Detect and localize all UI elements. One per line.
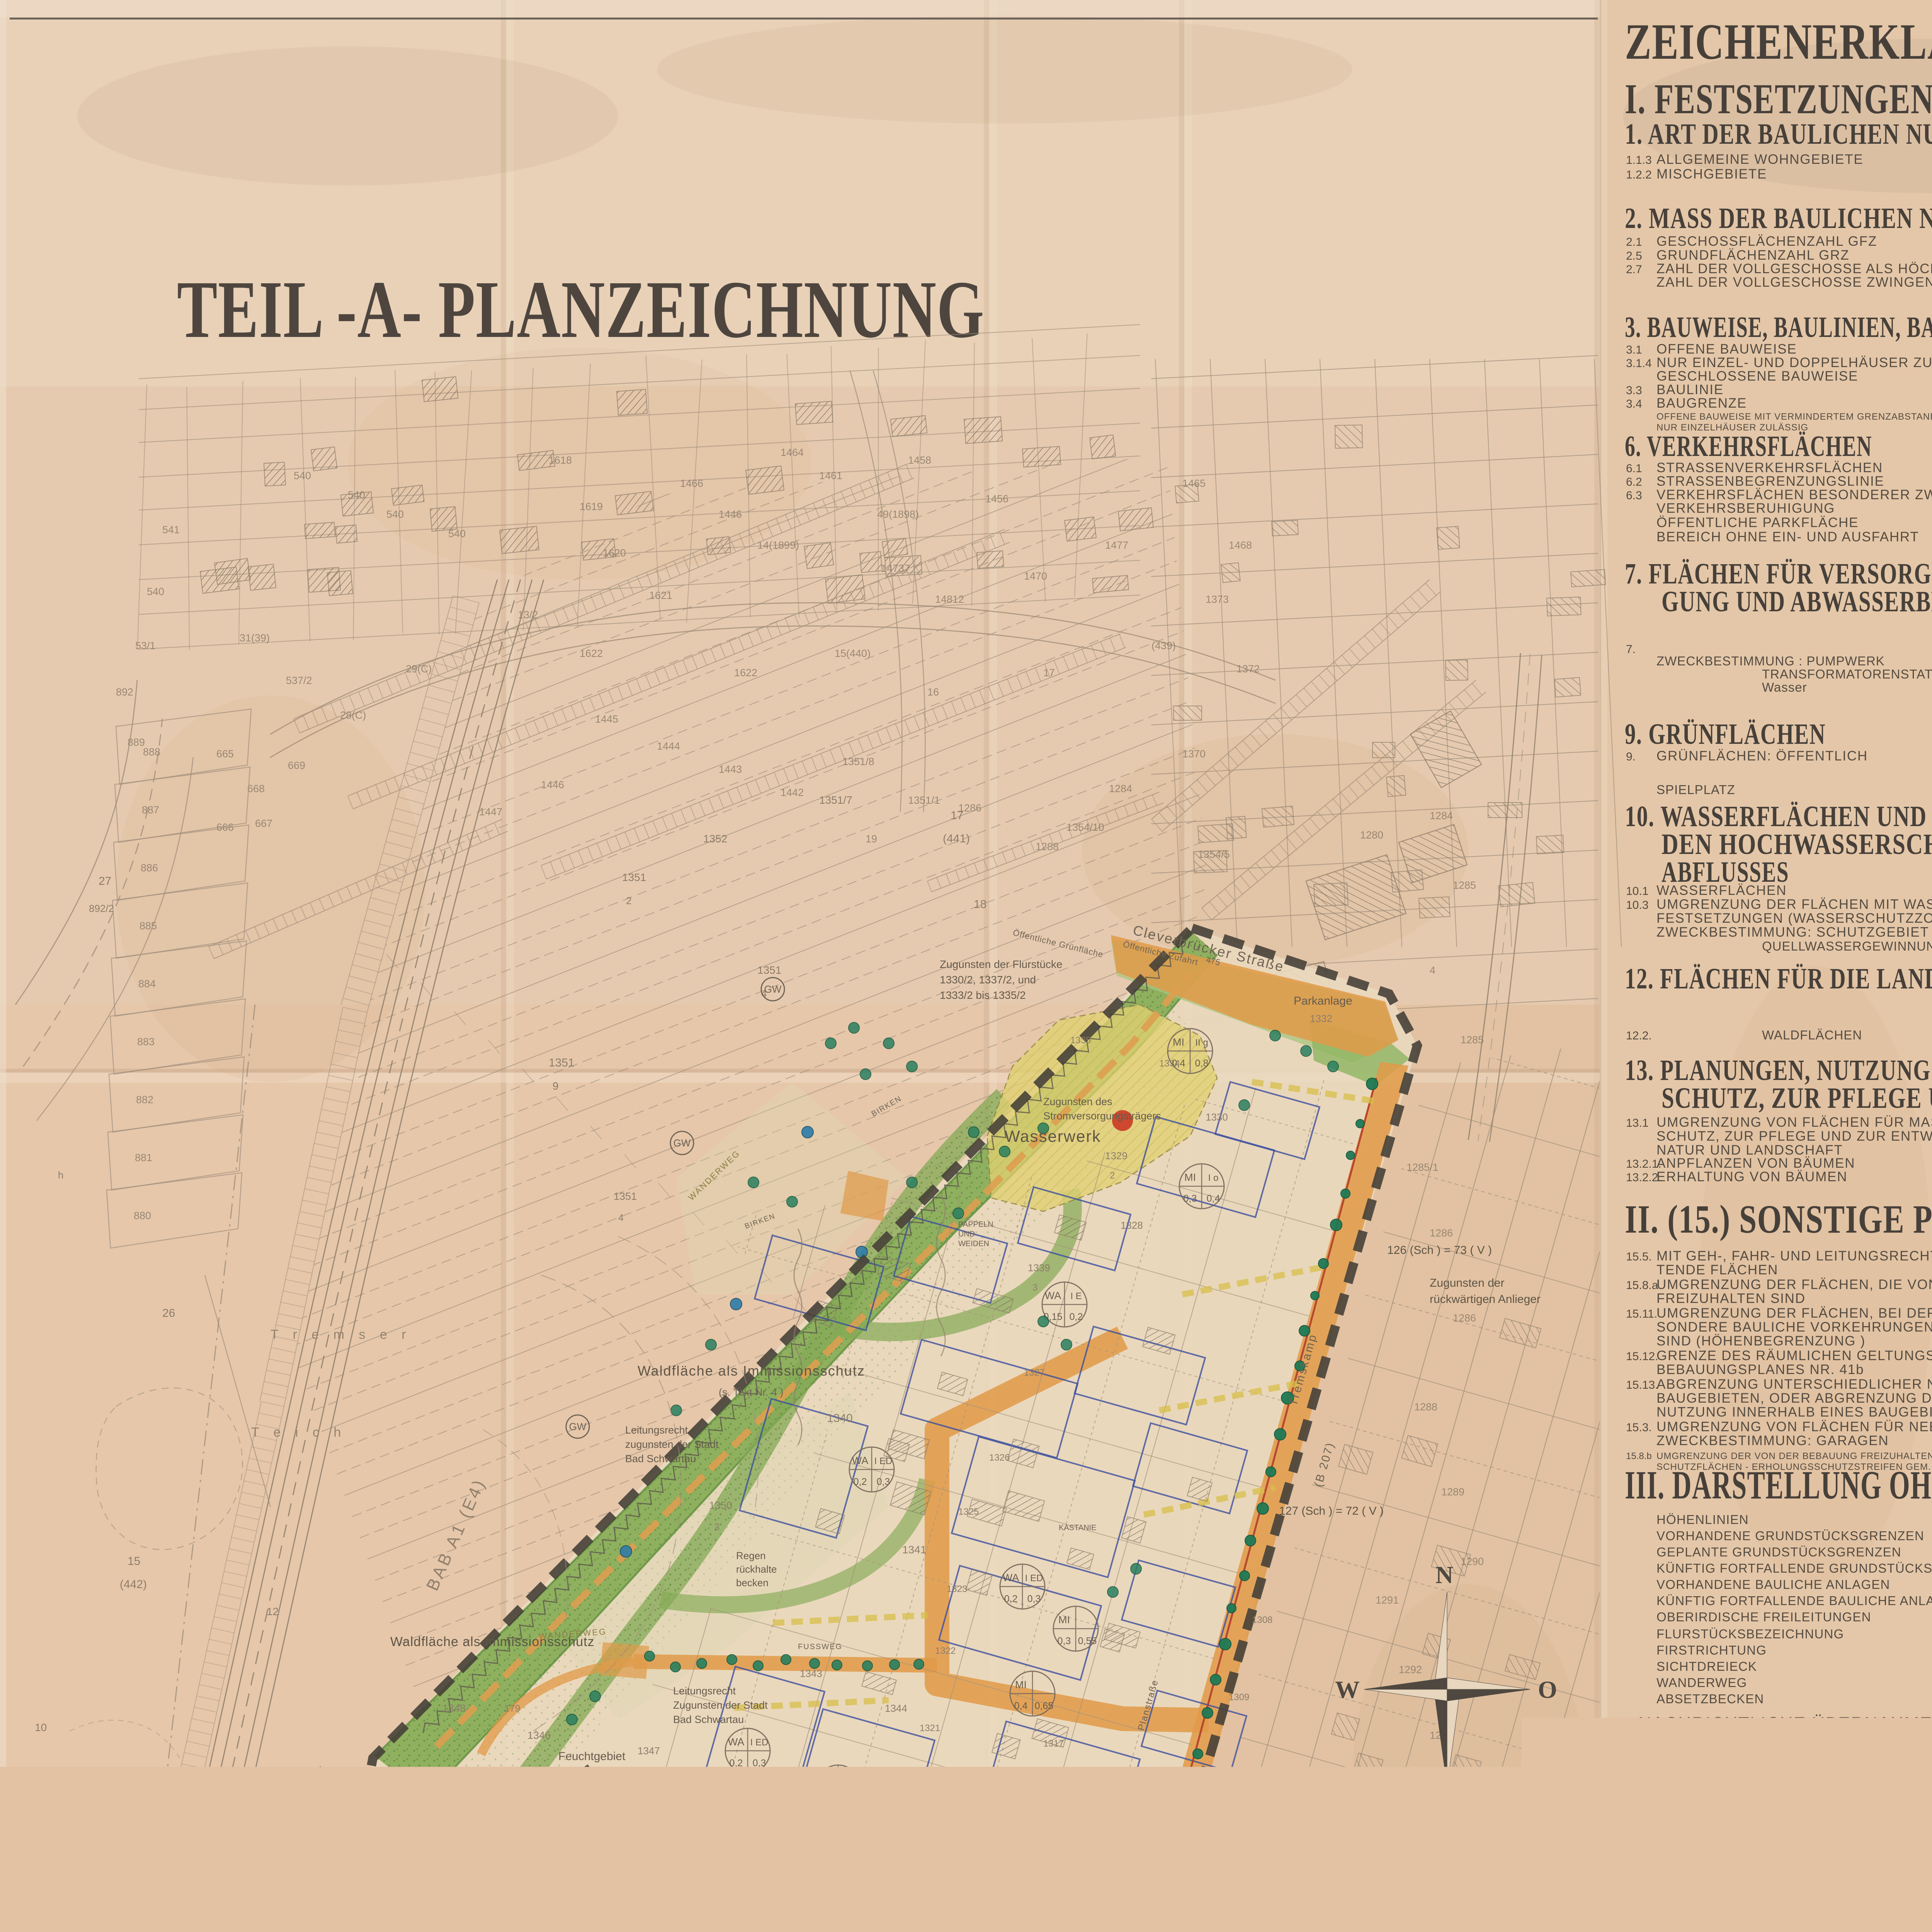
svg-text:Waldfläche als Immissionsschut: Waldfläche als Immissionsschutz — [638, 1363, 865, 1379]
svg-text:I. FESTSETZUNGEN: I. FESTSETZUNGEN — [1625, 75, 1932, 122]
svg-text:1.: 1. — [1638, 1814, 1648, 1827]
svg-text:SONDERE BAULICHE VORKEHRUNGE: SONDERE BAULICHE VORKEHRUNGEN ERFORDERLI… — [1656, 1320, 1932, 1335]
svg-text:1310: 1310 — [1206, 1769, 1226, 1780]
svg-text:T e i c h: T e i c h — [251, 1425, 346, 1440]
svg-text:UMGRENZUNG VON FLÄCHEN FÜR: UMGRENZUNG VON FLÄCHEN FÜR NEBENANLAGEN — [1656, 1419, 1932, 1434]
svg-text:(442): (442) — [120, 1578, 147, 1591]
svg-text:DER KLASSE 3 GEM. DIN 4109-SCH: DER KLASSE 3 GEM. DIN 4109-SCHALLSCHUTZ … — [1662, 1893, 1932, 1906]
svg-text:0,25: 0,25 — [686, 1875, 705, 1886]
svg-text:✳: ✳ — [1317, 1835, 1332, 1855]
svg-text:1465: 1465 — [1182, 478, 1206, 489]
svg-text:6. VERKEHRSFLÄCHEN: 6. VERKEHRSFLÄCHEN — [1625, 430, 1872, 463]
svg-text:1320: 1320 — [908, 1777, 929, 1787]
svg-text:1297: 1297 — [1376, 1903, 1399, 1915]
svg-text:ABSETZBECKEN: ABSETZBECKEN — [1656, 1692, 1764, 1706]
svg-text:SPIELPLATZ: SPIELPLATZ — [1656, 782, 1735, 797]
svg-text:29(C): 29(C) — [406, 663, 432, 675]
svg-text:881: 881 — [135, 1152, 152, 1163]
svg-text:Bad Schwartau: Bad Schwartau — [625, 1453, 696, 1464]
svg-text:1444: 1444 — [657, 740, 680, 752]
svg-text:1285: 1285 — [1453, 879, 1476, 891]
svg-text:OFFENE BAUWEISE MIT VERMIND: OFFENE BAUWEISE MIT VERMINDERTEM GRENZAB… — [1656, 412, 1932, 422]
svg-text:1619: 1619 — [580, 501, 603, 512]
svg-text:0,4: 0,4 — [1207, 1193, 1220, 1204]
svg-text:1468: 1468 — [1229, 539, 1252, 551]
svg-text:1309: 1309 — [838, 1866, 859, 1876]
svg-text:1466: 1466 — [680, 478, 703, 489]
svg-text:STRASSENBEGRENZUNGSLINIE: STRASSENBEGRENZUNGSLINIE — [1656, 474, 1884, 489]
svg-text:1352: 1352 — [703, 833, 727, 845]
svg-text:VORHANDENE BAULICHE ANLAGEN: VORHANDENE BAULICHE ANLAGEN — [1656, 1577, 1890, 1592]
svg-text:12: 12 — [267, 1605, 279, 1617]
svg-text:1289: 1289 — [1441, 1486, 1464, 1498]
svg-text:SIND (HÖHENBEGRENZUNG ): SIND (HÖHENBEGRENZUNG ) — [1656, 1333, 1866, 1349]
svg-text:S: S — [1435, 1795, 1450, 1822]
svg-text:1445: 1445 — [595, 713, 618, 725]
svg-text:zugunsten der Stadt: zugunsten der Stadt — [625, 1439, 719, 1450]
svg-text:NUTZUNG INNERHALB EINES BAU: NUTZUNG INNERHALB EINES BAUGEBIETS — [1656, 1405, 1932, 1420]
svg-text:53/1: 53/1 — [135, 640, 156, 651]
svg-text:UMGRENZUNG VON FLÄCHEN FÜR: UMGRENZUNG VON FLÄCHEN FÜR MASSNAHMEN ZU… — [1656, 1115, 1932, 1130]
svg-text:126 (Sch ) = 73 ( V ): 126 (Sch ) = 73 ( V ) — [1387, 1244, 1492, 1257]
svg-text:QUELLWASSERGEWINNUNG: QUELLWASSERGEWINNUNG — [1762, 939, 1932, 953]
svg-text:GW: GW — [764, 983, 782, 995]
svg-text:0,15: 0,15 — [663, 1875, 682, 1886]
svg-text:Regen: Regen — [270, 1818, 300, 1830]
svg-text:888: 888 — [143, 746, 160, 758]
svg-text:6.1: 6.1 — [1626, 462, 1642, 475]
svg-text:1321: 1321 — [920, 1723, 940, 1733]
svg-text:3.4: 3.4 — [1626, 398, 1642, 410]
svg-text:1354/5: 1354/5 — [1198, 849, 1230, 860]
svg-text:rückhalte: rückhalte — [736, 1563, 777, 1575]
svg-text:Leitungsrecht: Leitungsrecht — [673, 1685, 736, 1697]
svg-text:1288: 1288 — [1414, 1401, 1437, 1413]
svg-text:883: 883 — [137, 1036, 155, 1048]
svg-text:1373: 1373 — [1206, 594, 1229, 605]
svg-text:1309: 1309 — [1229, 1692, 1249, 1702]
svg-text:9 (232)( E ) - 87 ( L ): 9 (232)( E ) - 87 ( L ) — [708, 1910, 813, 1922]
svg-text:15.5.: 15.5. — [1626, 1250, 1652, 1263]
svg-text:13.2.2.: 13.2.2. — [1626, 1171, 1662, 1184]
svg-text:ZAHL DER VOLLGESCHOSSE ZWINGE: ZAHL DER VOLLGESCHOSSE ZWINGEND — [1656, 275, 1932, 290]
svg-text:2: 2 — [626, 895, 631, 906]
svg-text:0,4: 0,4 — [1014, 1701, 1028, 1711]
svg-text:VERKEHRSFLÄCHEN BESONDERER Z: VERKEHRSFLÄCHEN BESONDERER ZWECKBESTIMMU… — [1656, 487, 1932, 502]
svg-text:1308: 1308 — [1252, 1615, 1272, 1625]
svg-text:1477: 1477 — [1105, 539, 1128, 551]
svg-text:1329: 1329 — [1105, 1150, 1128, 1162]
svg-text:1286: 1286 — [1430, 1227, 1453, 1239]
svg-text:II g: II g — [1195, 1037, 1208, 1048]
svg-text:ZWECKBESTIMMUNG: SCHUTZGEBIET: ZWECKBESTIMMUNG: SCHUTZGEBIET FÜR GRUND-… — [1656, 925, 1932, 940]
svg-text:0,2: 0,2 — [854, 1476, 867, 1487]
svg-text:GRENZE DES RÄUMLICHEN GELTU: GRENZE DES RÄUMLICHEN GELTUNGSBEREICHS D… — [1656, 1348, 1932, 1363]
svg-text:GESCHLOSSENE BAUWEISE: GESCHLOSSENE BAUWEISE — [1656, 369, 1858, 384]
svg-text:2: 2 — [714, 1522, 719, 1532]
svg-text:880: 880 — [134, 1210, 151, 1221]
svg-text:I ED: I ED — [874, 1908, 893, 1918]
svg-text:8: 8 — [920, 1917, 926, 1929]
svg-text:3. BAUWEISE, BAULINIEN, BAUG: 3. BAUWEISE, BAULINIEN, BAUGRENZEN — [1625, 311, 1932, 344]
svg-text:O: O — [1538, 1676, 1558, 1703]
svg-text:UMGRENZUNG DER FLÄCHEN, DIE: UMGRENZUNG DER FLÄCHEN, DIE VON DER BEBA… — [1656, 1277, 1932, 1292]
svg-text:UMGRENZUNG DER VON DER BEB: UMGRENZUNG DER VON DER BEBAUUNG FREIZUHA… — [1656, 1451, 1932, 1461]
svg-text:WALDFLÄCHEN: WALDFLÄCHEN — [1762, 1028, 1862, 1042]
svg-text:1351: 1351 — [614, 1190, 637, 1202]
svg-text:I E: I E — [1070, 1291, 1082, 1301]
svg-text:882: 882 — [136, 1094, 153, 1105]
svg-text:KÜNFTIG FORTFALLENDE GRUNDST: KÜNFTIG FORTFALLENDE GRUNDSTÜCKSGRENZEN — [1656, 1561, 1932, 1575]
svg-text:MIT GEH-, FAHR- UND LEITUNG: MIT GEH-, FAHR- UND LEITUNGSRECHTEN ZU B… — [1656, 1248, 1932, 1264]
svg-text:NACH §4 DER LANDESVERORDNUNG Z: NACH §4 DER LANDESVERORDNUNG ZUM SCHUTZE… — [1662, 1920, 1932, 1932]
svg-text:Zugunsten der Flurstücke: Zugunsten der Flurstücke — [940, 958, 1063, 970]
svg-text:FESTSETZUNGEN (WASSERSCHUTZZO: FESTSETZUNGEN (WASSERSCHUTZZONE II) — [1656, 911, 1932, 926]
svg-text:ETWA 2,7HA ZWISCHEN AUTOBAHN A: ETWA 2,7HA ZWISCHEN AUTOBAHN A1 UND DER … — [1662, 1906, 1932, 1920]
svg-text:3.: 3. — [1638, 1879, 1648, 1893]
svg-text:GARAGEN UND STELLPLÄTZE MÜSSEN: GARAGEN UND STELLPLÄTZE MÜSSEN IM ALLGEM… — [1662, 1814, 1932, 1827]
svg-text:WA: WA — [852, 1907, 869, 1918]
svg-text:10: 10 — [35, 1721, 47, 1733]
svg-text:SCHUTZ, ZUR PFLEGE UND ZUR: SCHUTZ, ZUR PFLEGE UND ZUR ENTWICKLUNG V… — [1662, 1082, 1932, 1114]
svg-text:1372: 1372 — [1236, 663, 1260, 675]
svg-text:1316: 1316 — [997, 1924, 1017, 1932]
svg-text:1348: 1348 — [442, 1702, 466, 1714]
svg-text:0,3: 0,3 — [877, 1476, 890, 1487]
svg-text:17: 17 — [951, 809, 963, 822]
svg-text:18: 18 — [974, 898, 986, 911]
svg-text:UMGRENZUNG DER FLÄCHEN, BEI: UMGRENZUNG DER FLÄCHEN, BEI DEREN BEBAUU… — [1656, 1306, 1932, 1321]
svg-text:1447: 1447 — [479, 806, 502, 818]
svg-text:3: 3 — [1032, 1282, 1037, 1293]
svg-text:MI: MI — [1015, 1679, 1027, 1690]
svg-text:1.2.2: 1.2.2 — [1626, 168, 1652, 181]
svg-text:1618: 1618 — [549, 454, 572, 466]
svg-text:7.: 7. — [1626, 643, 1636, 656]
svg-text:rückhalte: rückhalte — [270, 1832, 311, 1844]
svg-text:OBERIRDISCHE FREILEITUNGEN: OBERIRDISCHE FREILEITUNGEN — [1656, 1610, 1871, 1624]
svg-text:Geändert gemäß Verfügung des: Geändert gemäß Verfügung des — [1383, 1821, 1575, 1835]
svg-text:1370: 1370 — [1182, 748, 1206, 760]
svg-text:16: 16 — [927, 686, 939, 698]
svg-text:1295: 1295 — [1414, 1923, 1437, 1932]
svg-text:1310: 1310 — [769, 1835, 789, 1845]
svg-text:KÜNFTIG FORTFALLENDE BAULICH: KÜNFTIG FORTFALLENDE BAULICHE ANLAGEN — [1656, 1594, 1932, 1608]
svg-text:1326: 1326 — [989, 1452, 1010, 1463]
svg-text:VORHANDENE GRUNDSTÜCKSGRENZEN: VORHANDENE GRUNDSTÜCKSGRENZEN — [1656, 1529, 1924, 1543]
svg-text:27: 27 — [99, 875, 111, 888]
svg-text:1620: 1620 — [603, 547, 626, 559]
svg-text:0,2: 0,2 — [1004, 1594, 1018, 1604]
svg-text:BAUGEBIETEN, ODER ABGRENZUNG: BAUGEBIETEN, ODER ABGRENZUNG DES MASSES … — [1656, 1391, 1932, 1406]
svg-text:W: W — [1335, 1676, 1361, 1703]
svg-text:0,65: 0,65 — [1035, 1701, 1054, 1711]
svg-text:Wasser: Wasser — [1762, 680, 1807, 694]
svg-text:Landrates des Kreises OH vom: Landrates des Kreises OH vom — [1383, 1839, 1571, 1854]
svg-text:Wasserwerk: Wasserwerk — [1005, 1127, 1101, 1145]
svg-text:FLURSTÜCKSBEZEICHNUNG: FLURSTÜCKSBEZEICHNUNG — [1656, 1627, 1844, 1641]
svg-text:2: 2 — [1110, 1170, 1115, 1181]
svg-text:1622: 1622 — [734, 667, 757, 679]
svg-text:NUR EINZEL- UND DOPPELHÄUSER Z: NUR EINZEL- UND DOPPELHÄUSER ZULÄSSIG — [1656, 355, 1932, 370]
svg-text:Stromversorgungsträgers: Stromversorgungsträgers — [1043, 1110, 1161, 1122]
svg-text:VERKEHRSBERUHIGUNG: VERKEHRSBERUHIGUNG — [1656, 501, 1835, 516]
svg-text:1343: 1343 — [800, 1668, 822, 1679]
svg-text:887: 887 — [142, 804, 159, 816]
svg-text:N: N — [1435, 1561, 1454, 1588]
svg-text:15.8.a: 15.8.a — [1626, 1279, 1658, 1292]
svg-text:0,3: 0,3 — [1058, 1636, 1071, 1646]
svg-text:1351/1: 1351/1 — [908, 794, 940, 806]
svg-text:1292: 1292 — [1399, 1664, 1422, 1675]
svg-text:SICHTDREIECK: SICHTDREIECK — [1656, 1659, 1757, 1673]
svg-text:1285/1: 1285/1 — [1406, 1162, 1439, 1173]
svg-text:13.2.1.: 13.2.1. — [1626, 1158, 1662, 1170]
svg-text:GRÜNFLÄCHEN: ÖFFENTLICH: GRÜNFLÄCHEN: ÖFFENTLICH — [1656, 748, 1868, 764]
svg-text:1446: 1446 — [541, 779, 564, 791]
svg-text:4.: 4. — [1638, 1906, 1648, 1920]
svg-text:1351: 1351 — [549, 1056, 575, 1069]
svg-text:GRUNDFLÄCHENZAHL GRZ: GRUNDFLÄCHENZAHL GRZ — [1656, 248, 1849, 263]
svg-text:1322: 1322 — [935, 1646, 956, 1656]
svg-text:becken: becken — [270, 1846, 303, 1858]
svg-text:MISCHGEBIETE: MISCHGEBIETE — [1656, 167, 1767, 182]
svg-text:NACHRICHTLICHE ÜBERNAHMEN: NACHRICHTLICHE ÜBERNAHMEN — [1638, 1713, 1932, 1733]
svg-text:15.13.: 15.13. — [1626, 1379, 1658, 1391]
svg-text:0,3: 0,3 — [753, 1758, 766, 1769]
svg-text:1344: 1344 — [885, 1702, 907, 1714]
svg-text:49(1898): 49(1898) — [877, 509, 919, 520]
svg-text:1330/2, 1337/2, und: 1330/2, 1337/2, und — [940, 974, 1036, 986]
svg-text:ZEICHENERKLÄRUNG: ZEICHENERKLÄRUNG — [1625, 13, 1932, 70]
svg-text:T r e m s e r: T r e m s e r — [270, 1327, 412, 1342]
svg-text:12.2.: 12.2. — [1626, 1029, 1652, 1042]
svg-text:ZWECKBESTIMMUNG: GARAGEN: ZWECKBESTIMMUNG: GARAGEN — [1656, 1433, 1889, 1448]
svg-text:Regen: Regen — [736, 1550, 766, 1561]
svg-text:127 (Sch ) = 72 ( V ): 127 (Sch ) = 72 ( V ) — [1279, 1505, 1384, 1517]
svg-text:WA: WA — [852, 1455, 869, 1466]
svg-text:14812: 14812 — [935, 594, 964, 605]
svg-text:WASSERFLÄCHEN: WASSERFLÄCHEN — [1656, 883, 1787, 898]
svg-text:OFFENE BAUWEISE: OFFENE BAUWEISE — [1656, 342, 1797, 357]
svg-text:WA: WA — [818, 1773, 835, 1784]
svg-text:0,2: 0,2 — [820, 1794, 833, 1805]
svg-text:1351: 1351 — [622, 871, 646, 883]
svg-text:WA: WA — [1045, 1290, 1061, 1301]
svg-text:1318: 1318 — [1005, 1823, 1025, 1834]
svg-text:0,2: 0,2 — [854, 1929, 867, 1932]
svg-text:6.2: 6.2 — [1626, 476, 1642, 488]
svg-text:GUNG UND ABWASSERBESEITIGUNG: GUNG UND ABWASSERBESEITIGUNG SOWIE FÜR A… — [1662, 585, 1932, 618]
svg-text:1323: 1323 — [947, 1584, 967, 1594]
svg-text:✳: ✳ — [314, 1764, 327, 1781]
svg-text:1280: 1280 — [1360, 829, 1383, 841]
svg-text:I o: I o — [1208, 1173, 1219, 1183]
svg-text:884: 884 — [138, 978, 156, 990]
svg-text:1458: 1458 — [908, 454, 931, 466]
svg-text:Parkanlage: Parkanlage — [1294, 995, 1352, 1007]
svg-text:892/2: 892/2 — [89, 903, 114, 914]
svg-text:STRASSENVERKEHRSFLÄCHEN: STRASSENVERKEHRSFLÄCHEN — [1656, 460, 1883, 475]
svg-text:ALLGEMEINE WOHNGEBIETE: ALLGEMEINE WOHNGEBIETE — [1656, 152, 1864, 167]
svg-text:1.1.3: 1.1.3 — [1626, 154, 1652, 167]
svg-text:(441): (441) — [943, 832, 970, 845]
svg-text:WA: WA — [1003, 1572, 1019, 1583]
svg-text:2. MASS DER BAULICHEN NUTZU: 2. MASS DER BAULICHEN NUTZUNG — [1625, 202, 1932, 235]
svg-text:1317: 1317 — [1043, 1738, 1064, 1749]
svg-text:Zugunsten des: Zugunsten des — [1043, 1096, 1112, 1107]
svg-text:DIE AUFENTHALTSRÄUME DER GEBÄU: DIE AUFENTHALTSRÄUME DER GEBÄUDE AN DER … — [1662, 1879, 1932, 1893]
svg-text:I ED: I ED — [841, 1774, 859, 1784]
svg-text:PAPPELN: PAPPELN — [958, 1220, 993, 1229]
svg-text:1334: 1334 — [1159, 1058, 1180, 1069]
svg-text:1461: 1461 — [819, 470, 842, 481]
svg-text:KASTANIE: KASTANIE — [1059, 1524, 1096, 1532]
svg-text:12. FLÄCHEN FÜR DIE LANDWIR: 12. FLÄCHEN FÜR DIE LANDWIRTSCHAFT UND — [1625, 963, 1932, 995]
svg-text:665: 665 — [216, 748, 234, 760]
svg-text:UND: UND — [958, 1230, 975, 1238]
svg-text:1. ART DER BAULICHEN NUTZUN: 1. ART DER BAULICHEN NUTZUNG — [1625, 118, 1932, 150]
svg-text:1335: 1335 — [1070, 1035, 1091, 1046]
svg-text:2.5: 2.5 — [1626, 250, 1642, 262]
svg-text:Leitungsrecht: Leitungsrecht — [625, 1424, 688, 1436]
svg-text:MI: MI — [1058, 1614, 1070, 1626]
svg-text:1290: 1290 — [1461, 1556, 1484, 1567]
svg-text:ZAHL DER VOLLGESCHOSSE ALS H: ZAHL DER VOLLGESCHOSSE ALS HÖCHSTGRENZE — [1656, 261, 1932, 276]
svg-text:19: 19 — [866, 833, 877, 845]
svg-text:0,55: 0,55 — [1078, 1636, 1097, 1646]
svg-text:0,2: 0,2 — [730, 1758, 743, 1769]
svg-text:2.: 2. — [1638, 1852, 1648, 1866]
svg-text:I ED: I ED — [750, 1737, 769, 1748]
svg-text:885: 885 — [139, 920, 157, 932]
svg-text:15(440): 15(440) — [835, 648, 871, 659]
svg-text:Feuchtgebiet: Feuchtgebiet — [558, 1750, 626, 1763]
svg-text:15: 15 — [128, 1555, 140, 1568]
svg-text:0,3: 0,3 — [843, 1794, 857, 1805]
svg-text:1464: 1464 — [781, 447, 804, 458]
svg-text:1347: 1347 — [638, 1745, 660, 1757]
svg-text:0,4: 0,4 — [877, 1929, 890, 1932]
svg-text:3.1.4: 3.1.4 — [1626, 357, 1652, 370]
svg-text:9. GRÜNFLÄCHEN: 9. GRÜNFLÄCHEN — [1625, 718, 1826, 750]
svg-text:ABGRENZUNG UNTERSCHIEDLICHER: ABGRENZUNG UNTERSCHIEDLICHER NUTZUNG, Z.… — [1656, 1377, 1932, 1392]
svg-text:becken: becken — [736, 1577, 769, 1588]
svg-text:GEPLANTE GRUNDSTÜCKSGRENZEN: GEPLANTE GRUNDSTÜCKSGRENZEN — [1656, 1545, 1901, 1559]
svg-text:1351: 1351 — [757, 964, 781, 976]
svg-text:1351/7: 1351/7 — [819, 794, 852, 806]
svg-text:886: 886 — [141, 862, 158, 874]
svg-text:I ED: I ED — [874, 1456, 893, 1466]
svg-text:1350: 1350 — [709, 1500, 732, 1511]
svg-text:0,8: 0,8 — [1195, 1058, 1209, 1069]
svg-text:0,3: 0,3 — [1027, 1594, 1041, 1604]
svg-text:540: 540 — [386, 509, 404, 520]
svg-text:1332: 1332 — [1310, 1013, 1332, 1024]
svg-text:1284: 1284 — [1430, 810, 1453, 821]
svg-text:1325: 1325 — [958, 1507, 979, 1517]
svg-text:3.3: 3.3 — [1626, 384, 1642, 397]
svg-text:MI: MI — [1173, 1036, 1184, 1048]
svg-text:FLÄCHEN LIEGEN. IM MISCHGEBIET: FLÄCHEN LIEGEN. IM MISCHGEBIET SIND GARA… — [1662, 1827, 1932, 1840]
svg-text:BAUGRENZE: BAUGRENZE — [1656, 396, 1747, 411]
svg-text:14737: 14737 — [881, 563, 910, 574]
svg-text:1354/10: 1354/10 — [1066, 821, 1104, 833]
svg-text:h: h — [58, 1169, 63, 1181]
svg-text:14(1899): 14(1899) — [757, 539, 799, 551]
svg-text:BAULINIE: BAULINIE — [1656, 382, 1724, 397]
svg-text:540: 540 — [448, 528, 466, 539]
svg-text:2.7: 2.7 — [1626, 263, 1642, 276]
svg-text:541: 541 — [162, 524, 180, 536]
svg-text:26: 26 — [162, 1307, 175, 1320]
svg-text:540: 540 — [147, 586, 164, 597]
svg-text:ÖFFENTLICHE PARKFLÄCHE: ÖFFENTLICHE PARKFLÄCHE — [1656, 515, 1859, 530]
svg-text:1328: 1328 — [1121, 1219, 1143, 1231]
svg-text:1456: 1456 — [985, 493, 1009, 505]
svg-text:WA: WA — [728, 1736, 745, 1748]
svg-text:667: 667 — [255, 818, 272, 829]
svg-text:BEBAUUNGSPLANES NR. 41b: BEBAUUNGSPLANES NR. 41b — [1656, 1362, 1864, 1377]
svg-text:II. (15.) SONSTIGE PLANZEICH: II. (15.) SONSTIGE PLANZEICHEN — [1625, 1197, 1932, 1242]
svg-text:1311: 1311 — [1179, 1847, 1199, 1857]
svg-text:1327: 1327 — [1024, 1367, 1044, 1378]
svg-text:1446: 1446 — [719, 509, 742, 520]
svg-text:I ED: I ED — [687, 1854, 705, 1865]
svg-text:1339: 1339 — [1028, 1262, 1050, 1274]
svg-text:15.12.: 15.12. — [1626, 1350, 1658, 1363]
svg-text:GW: GW — [569, 1421, 587, 1432]
svg-text:1443: 1443 — [719, 764, 742, 775]
svg-text:3.1: 3.1 — [1626, 344, 1642, 356]
svg-text:9.: 9. — [1626, 750, 1636, 763]
svg-text:I ED: I ED — [1025, 1573, 1043, 1583]
svg-text:0,3: 0,3 — [1184, 1193, 1197, 1204]
svg-text:10.1: 10.1 — [1626, 885, 1648, 898]
svg-text:4: 4 — [618, 1213, 624, 1223]
svg-text:668: 668 — [247, 783, 265, 794]
svg-text:GESCHOSSFLÄCHENZAHL GFZ: GESCHOSSFLÄCHENZAHL GFZ — [1656, 234, 1877, 249]
svg-text:1351/8: 1351/8 — [842, 756, 874, 767]
svg-text:0,2: 0,2 — [1070, 1311, 1083, 1322]
svg-text:1285: 1285 — [1461, 1034, 1484, 1046]
svg-text:TEIL -A- PLANZEICHNUNG: TEIL -A- PLANZEICHNUNG — [177, 264, 985, 355]
svg-text:VOR DER GARAGE BZW. DEM STELLP: VOR DER GARAGE BZW. DEM STELLPLATZE IST … — [1662, 1839, 1932, 1852]
svg-text:FIRSTRICHTUNG: FIRSTRICHTUNG — [1656, 1643, 1767, 1657]
svg-text:HÖHENLINIEN: HÖHENLINIEN — [1656, 1512, 1749, 1527]
svg-text:1333/2 bis 1335/2: 1333/2 bis 1335/2 — [940, 989, 1026, 1001]
svg-text:15.11.: 15.11. — [1626, 1308, 1657, 1320]
svg-text:1340: 1340 — [827, 1412, 853, 1425]
svg-text:Zugunsten der: Zugunsten der — [1430, 1277, 1504, 1289]
svg-text:TENDE FLÄCHEN: TENDE FLÄCHEN — [1656, 1262, 1778, 1277]
svg-text:LÄSSIG. STRAUCHWERK UND EINFRI: LÄSSIG. STRAUCHWERK UND EINFRIEDIGUNGEN … — [1662, 1865, 1932, 1879]
svg-text:FUSSWEG: FUSSWEG — [798, 1643, 842, 1651]
svg-text:UMGRENZUNG DER FLÄCHEN MIT: UMGRENZUNG DER FLÄCHEN MIT WASSERRECHTLI… — [1656, 897, 1932, 912]
svg-text:669: 669 — [288, 760, 305, 771]
svg-text:rückwärtigen Anlieger: rückwärtigen Anlieger — [1430, 1293, 1541, 1306]
svg-text:WA: WA — [664, 1853, 681, 1865]
svg-text:540: 540 — [348, 489, 365, 501]
svg-text:31(39): 31(39) — [240, 632, 270, 644]
svg-text:III. DARSTELLUNG OHNE NORMCH: III. DARSTELLUNG OHNE NORMCHARAKTER — [1625, 1463, 1932, 1507]
svg-text:1349: 1349 — [417, 1804, 439, 1815]
svg-text:WANDERWEG: WANDERWEG — [1656, 1675, 1747, 1690]
svg-text:1330: 1330 — [1206, 1111, 1228, 1123]
svg-text:BEREICH OHNE EIN- UND AUSFA: BEREICH OHNE EIN- UND AUSFAHRT — [1656, 529, 1919, 544]
svg-text:TRANSFORMATORENSTATION: TRANSFORMATORENSTATION — [1762, 667, 1932, 681]
svg-text:GW: GW — [673, 1137, 691, 1149]
